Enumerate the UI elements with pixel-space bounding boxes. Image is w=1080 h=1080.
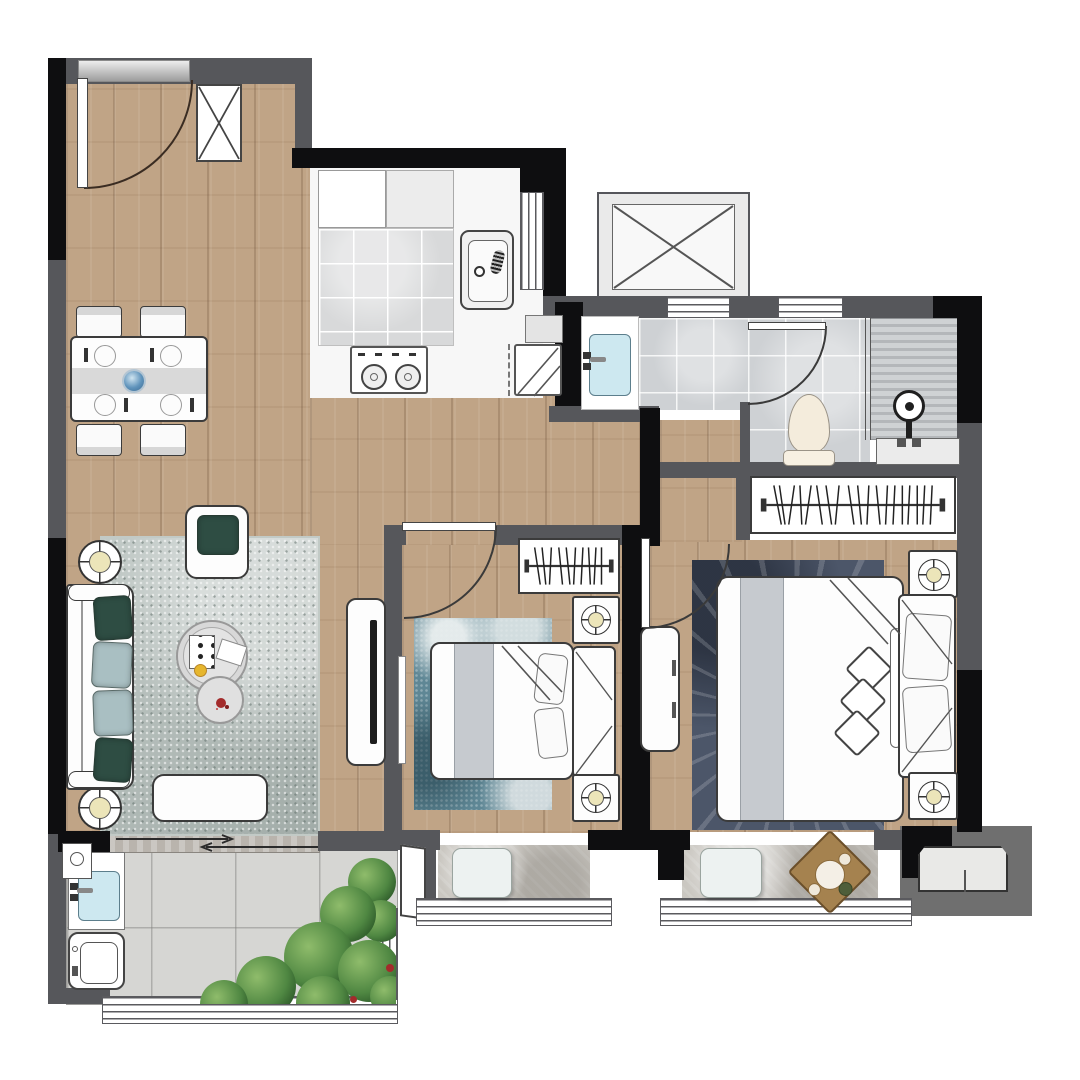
wall-bath-wash-divider [740, 402, 750, 468]
shoe-cabinet-x-icon [196, 84, 242, 162]
burner-center [404, 373, 412, 381]
wall-balcony-bottom [48, 988, 110, 1004]
ac-split-line [964, 870, 966, 894]
master-door-leaf [641, 538, 650, 628]
wall-left-top [48, 58, 66, 260]
wall-left-mid [48, 260, 66, 538]
flower-centerpiece [124, 371, 144, 391]
shaft-x-icon [612, 204, 735, 290]
plate [160, 394, 182, 416]
nightstand [572, 774, 620, 822]
tv [370, 620, 377, 744]
tv-cabinet [346, 598, 386, 766]
utility-box [525, 315, 563, 343]
bay2-window-band [416, 898, 612, 926]
floor-lamp-top [78, 540, 122, 584]
vanity-basin [589, 334, 631, 396]
wall-mirror [398, 656, 406, 764]
dining-table [70, 336, 208, 422]
faucet-icon [474, 266, 485, 277]
shower-arm [906, 421, 912, 438]
kitchen-floor-tile [318, 228, 454, 346]
wash-floor-tile [639, 318, 748, 410]
bay2-cushion [452, 848, 512, 898]
plate [94, 394, 116, 416]
shower-valve [897, 438, 906, 447]
glass-partition [865, 318, 871, 440]
plate [160, 345, 182, 367]
sofa-pillow-blue [91, 641, 133, 689]
wall-wardrobe-left [736, 478, 750, 540]
wall-kitchen-right [543, 148, 566, 296]
master-wardrobe [750, 476, 956, 534]
bedroom2-wardrobe [518, 538, 620, 594]
wall-baym-right [874, 830, 902, 850]
table-lamp-icon [581, 605, 611, 635]
hanger-rail-icon [752, 478, 954, 532]
wall-right-low [957, 670, 982, 832]
kitchen-window [520, 192, 544, 290]
nightstand [572, 596, 620, 644]
red-berries [216, 698, 226, 708]
dining-chair [140, 424, 186, 456]
vanity-faucet-icon [583, 363, 591, 370]
floor-plan [0, 0, 1080, 1080]
washing-machine [68, 932, 125, 990]
armchair [185, 505, 249, 579]
entry-threshold [78, 60, 190, 82]
wall-left-low [48, 538, 66, 834]
cutlery-icon [84, 348, 88, 362]
shower-valve [912, 438, 921, 447]
refrigerator [514, 344, 562, 396]
baym-cushion [700, 848, 762, 898]
wall-bath-top [543, 296, 982, 318]
dresser [640, 626, 680, 752]
blanket-band [454, 644, 494, 778]
ac-outdoor-unit [918, 846, 1008, 892]
dresser-handle [672, 702, 676, 718]
washer-button [72, 966, 78, 976]
dresser-handle [672, 660, 676, 676]
bedroom2-door-leaf [402, 522, 496, 531]
table-lamp-icon [918, 559, 950, 591]
plant-berry [386, 964, 394, 972]
plate [94, 345, 116, 367]
wall-right-mid [957, 423, 982, 670]
baym-window-band [660, 898, 912, 926]
master-pillow [902, 612, 952, 681]
cutlery-icon [190, 398, 194, 412]
cooktop [350, 346, 428, 394]
table-lamp-icon [581, 783, 611, 813]
bathroom-door-leaf [748, 322, 826, 330]
burner-center [370, 373, 378, 381]
countertop-section [386, 170, 454, 228]
cutlery-icon [150, 348, 154, 362]
shower-floor [870, 318, 958, 440]
side-table [196, 676, 244, 724]
refrigerator-dashed-edge [508, 344, 510, 396]
table-lamp-icon [918, 781, 950, 813]
bed2-pillow [533, 706, 569, 759]
floor-master-corridor [660, 420, 742, 542]
wall-baym-left [658, 830, 684, 880]
bath-window-1 [667, 296, 730, 318]
shower-head-center [905, 402, 914, 411]
master-pillow [902, 684, 952, 753]
yellow-dot [194, 664, 207, 677]
bath-window-2 [778, 296, 843, 318]
sofa-pillow-green [93, 595, 134, 642]
drain-icon [70, 852, 84, 866]
hanger-rail-icon [520, 540, 618, 592]
kitchen-sink [460, 230, 514, 310]
ottoman-bench [152, 774, 268, 822]
floor-drain-box [62, 843, 92, 879]
balcony-plants [200, 856, 396, 1004]
sofa-back-line [81, 590, 83, 784]
sofa-pillow-blue [92, 689, 134, 736]
plant-berry [350, 996, 357, 1003]
laundry-spout [77, 888, 93, 893]
washer-door [80, 942, 118, 984]
upper-cabinet [318, 170, 386, 228]
toilet-tank [783, 450, 835, 466]
entry-door-leaf [77, 78, 88, 188]
laundry-faucet-icon [70, 894, 78, 901]
vanity-spout [590, 357, 606, 362]
wall-right-upper [957, 296, 982, 423]
cutlery-icon [124, 398, 128, 412]
washer-dial-icon [72, 946, 78, 952]
armchair-cushion [197, 515, 239, 555]
floor-lamp-bottom [78, 786, 122, 830]
wall-living-bottom-gray [318, 831, 398, 851]
nightstand [908, 550, 958, 598]
cooktop-controls [358, 353, 420, 356]
dining-chair [76, 306, 122, 338]
sofa-pillow-green [93, 737, 134, 784]
dining-chair [76, 424, 122, 456]
bed2-pillow [533, 652, 569, 705]
nightstand [908, 772, 958, 820]
dining-chair [140, 306, 186, 338]
blanket-band [740, 578, 784, 820]
bed2-headboard [572, 646, 616, 778]
